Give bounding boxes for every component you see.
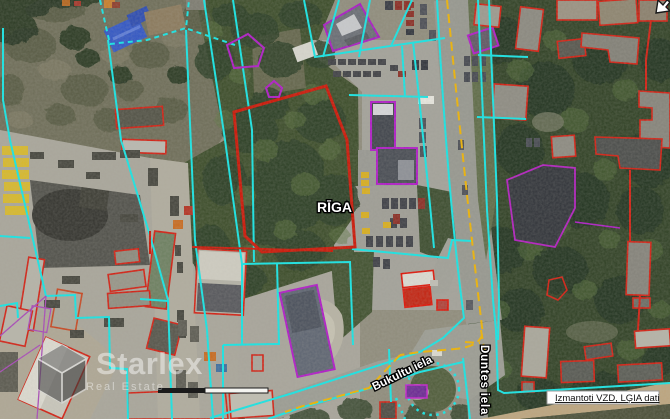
svg-text:RĪGA: RĪGA <box>317 199 352 215</box>
svg-text:Real Estate: Real Estate <box>86 381 165 393</box>
svg-text:Izmantoti VZD, LĢIA dati: Izmantoti VZD, LĢIA dati <box>555 393 660 404</box>
svg-text:Starlex: Starlex <box>96 346 203 381</box>
svg-text:Duntes iela: Duntes iela <box>478 345 490 415</box>
